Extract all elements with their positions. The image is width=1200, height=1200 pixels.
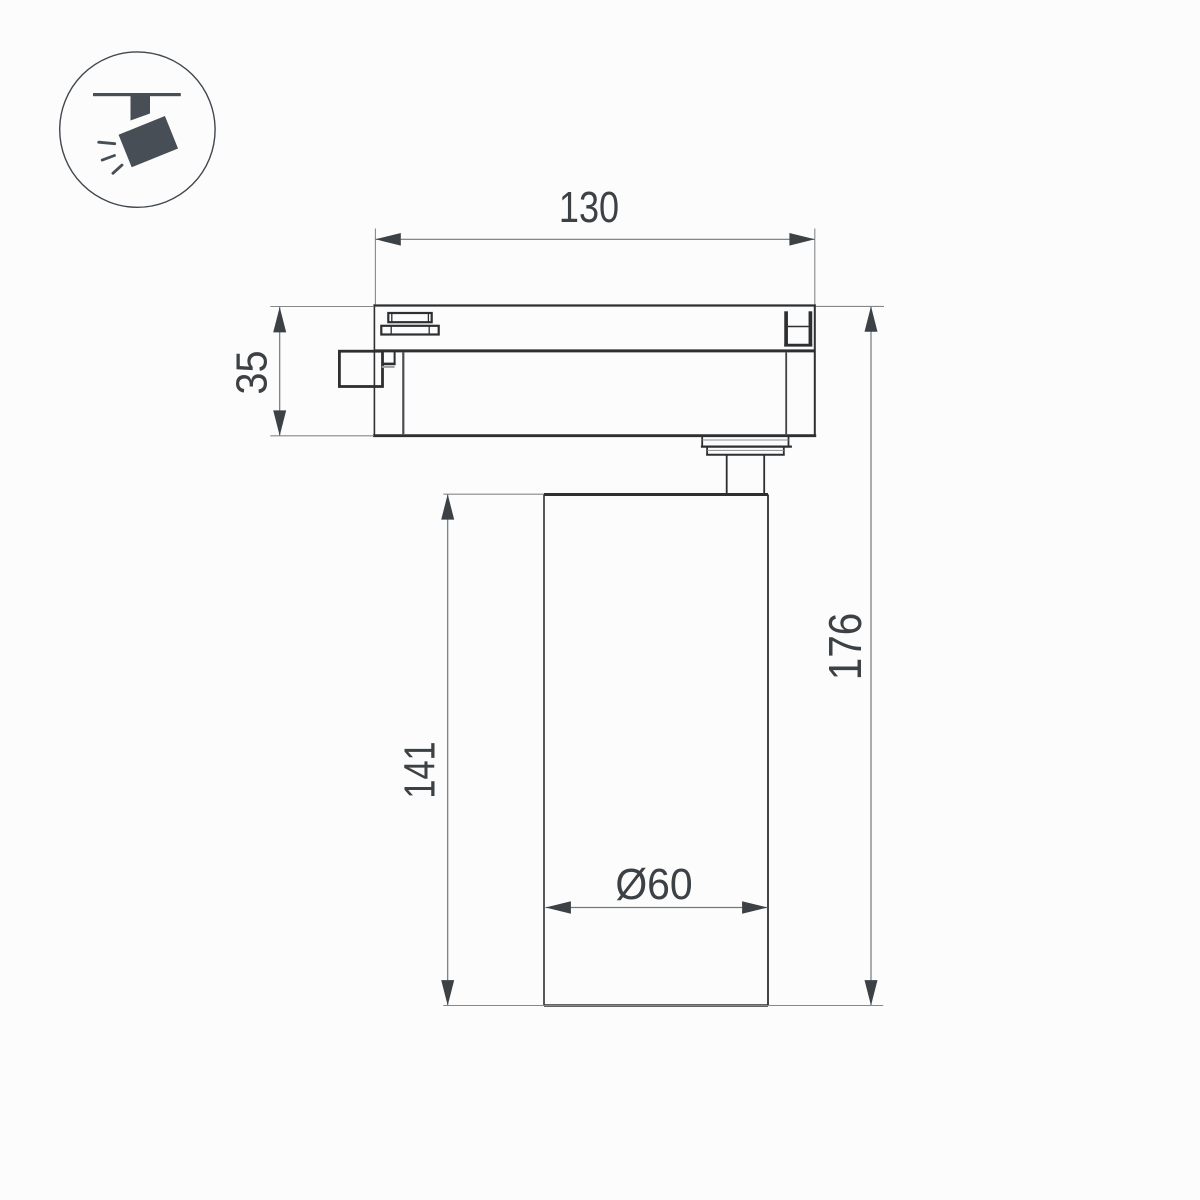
svg-text:Ø60: Ø60 — [615, 861, 692, 910]
svg-text:130: 130 — [559, 183, 619, 232]
svg-text:35: 35 — [227, 350, 276, 394]
svg-text:141: 141 — [395, 741, 444, 798]
svg-text:176: 176 — [821, 613, 872, 681]
